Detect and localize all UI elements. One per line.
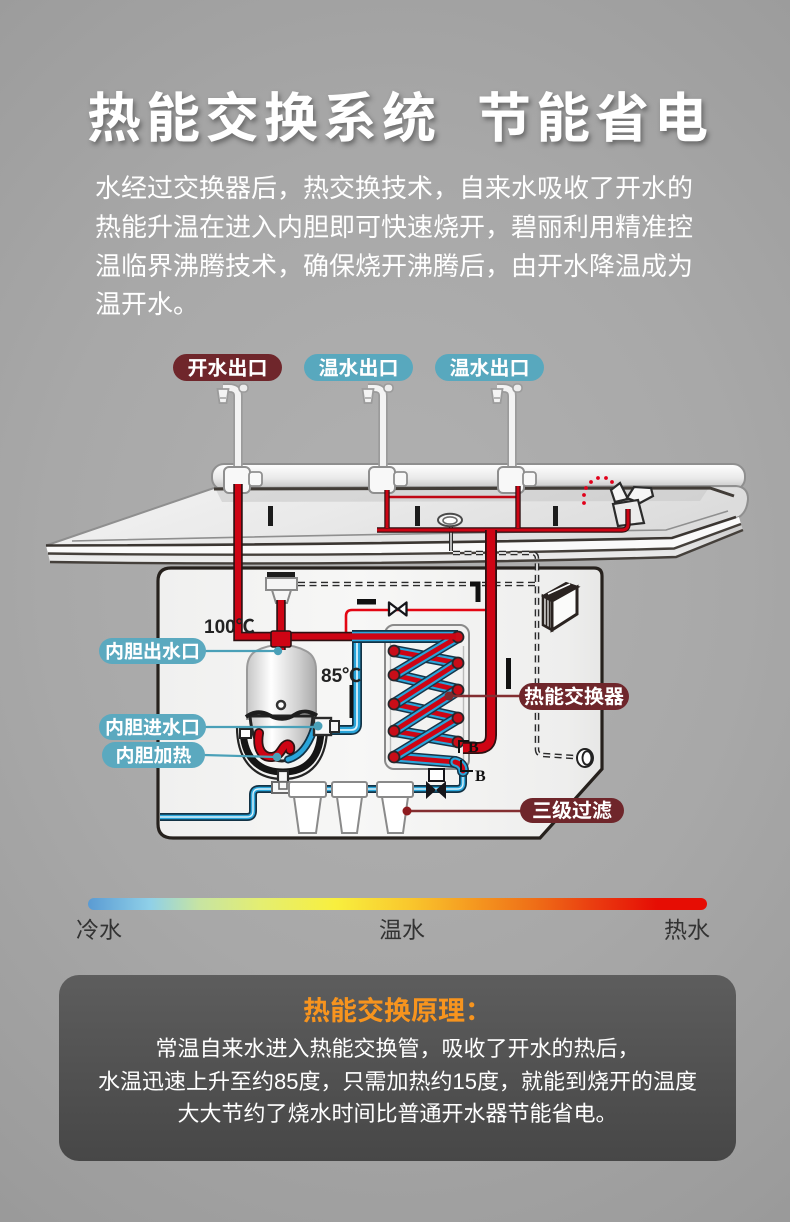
svg-text:B: B xyxy=(468,739,479,756)
svg-text:热能交换器: 热能交换器 xyxy=(524,686,624,709)
svg-text:内胆进水口: 内胆进水口 xyxy=(105,717,200,739)
svg-text:内胆加热: 内胆加热 xyxy=(115,745,191,767)
svg-text:温水出口: 温水出口 xyxy=(450,358,530,380)
svg-text:100℃: 100℃ xyxy=(204,617,255,638)
svg-text:B: B xyxy=(475,768,486,785)
svg-text:三级过滤: 三级过滤 xyxy=(532,800,612,823)
svg-text:开水出口: 开水出口 xyxy=(188,358,268,380)
svg-text:内胆出水口: 内胆出水口 xyxy=(105,641,200,663)
svg-text:温水出口: 温水出口 xyxy=(319,358,399,380)
svg-text:85℃: 85℃ xyxy=(321,666,361,687)
